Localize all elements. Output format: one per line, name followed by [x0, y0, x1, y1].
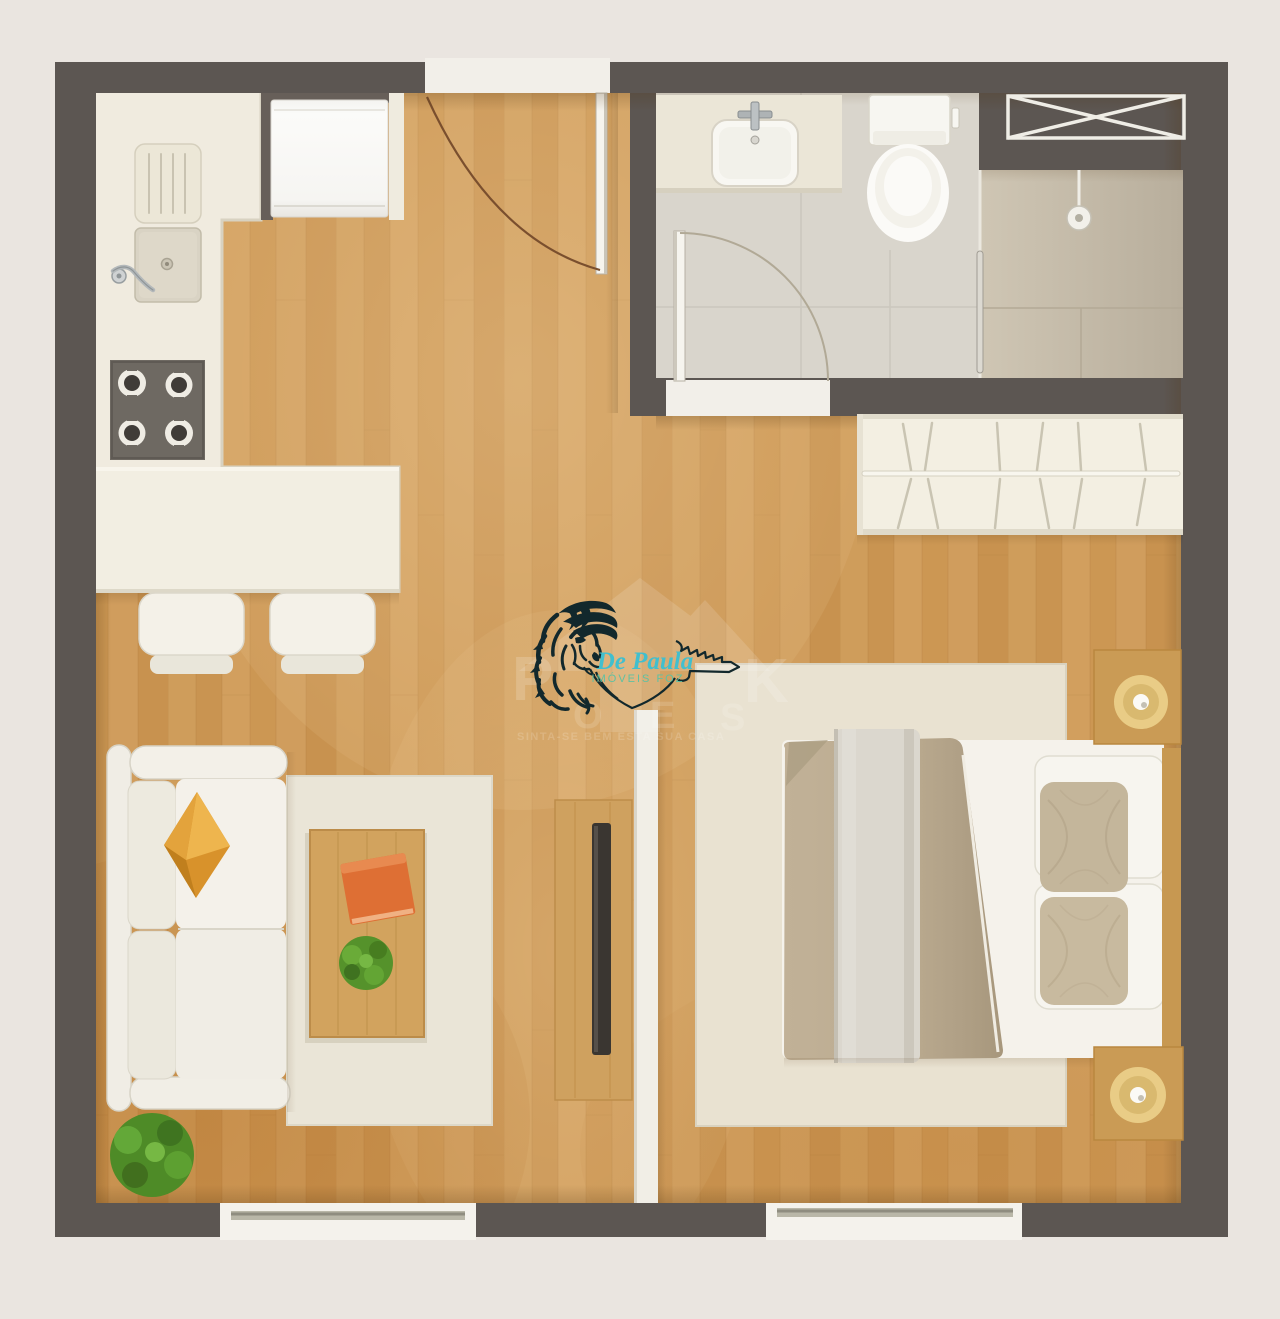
svg-text:SINTA-SE BEM ESTA SUA CASA: SINTA-SE BEM ESTA SUA CASA [517, 731, 725, 743]
svg-text:K: K [744, 647, 789, 716]
svg-text:IMÓVEIS FOZ: IMÓVEIS FOZ [592, 672, 685, 685]
svg-text:De Paula: De Paula [596, 648, 694, 675]
